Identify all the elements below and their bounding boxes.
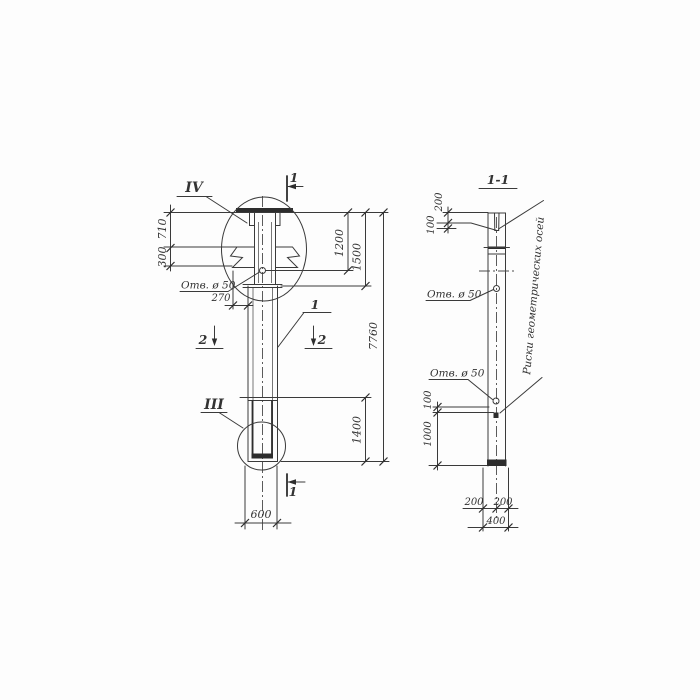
- section-view: 1-1: [423, 172, 547, 532]
- section-hole-callout-bottom: Отв. ø 50: [429, 368, 493, 400]
- dim-270: 270: [210, 293, 231, 304]
- section-title-group: 1-1: [479, 172, 517, 189]
- section-cut-2-right-label: 2: [317, 332, 327, 347]
- section-cut-2-left: 2: [196, 326, 223, 349]
- drawing-sheet: IV III 1 1 2: [0, 0, 700, 700]
- dim-200-top: 200: [434, 192, 445, 213]
- section-bottom-end: [487, 460, 507, 467]
- corbel-right: [276, 247, 300, 268]
- section-cut-1-top: 1: [287, 170, 303, 201]
- detail-mark-top-label: IV: [184, 180, 205, 196]
- section-cut-2-left-label: 2: [198, 332, 208, 347]
- position-label: 1: [311, 297, 320, 312]
- lower-joint: [240, 398, 285, 401]
- section-cut-2-right: 2: [305, 326, 332, 349]
- dim-1400: 1400: [351, 416, 364, 444]
- dim-100-bottom: 100: [423, 390, 434, 410]
- section-title: 1-1: [487, 172, 510, 187]
- cap-plate: [236, 208, 293, 213]
- axis-note: Риски геометрических осей: [521, 216, 547, 376]
- section-dims-width: 200 200 400: [463, 468, 518, 532]
- front-view: IV III 1 1 2: [156, 170, 389, 532]
- dim-600: 600: [251, 508, 272, 521]
- section-cut-1-bottom-label: 1: [289, 484, 298, 499]
- section-cut-1-top-label: 1: [290, 170, 299, 185]
- technical-drawing: IV III 1 1 2: [0, 0, 700, 700]
- corbel-left: [231, 247, 255, 268]
- front-hole-label: Отв. ø 50: [181, 280, 236, 292]
- dim-100-top: 100: [426, 215, 437, 235]
- detail-mark-top: IV: [177, 180, 247, 223]
- dim-7760: 7760: [367, 322, 380, 350]
- dim-1500: 1500: [351, 243, 364, 271]
- section-hole-bottom: [493, 398, 499, 404]
- dim-400: 400: [485, 516, 506, 527]
- detail-mark-bottom-label: III: [203, 397, 224, 413]
- section-hole-label-bottom: Отв. ø 50: [430, 368, 485, 380]
- dim-600-group: 600: [235, 466, 291, 529]
- dim-1200: 1200: [333, 229, 346, 257]
- axis-notch-bottom: [494, 413, 499, 419]
- section-hole-callout-top: Отв. ø 50: [426, 289, 494, 301]
- cap-neck: [250, 213, 281, 285]
- dim-710: 710: [156, 219, 169, 240]
- dim-200-right: 200: [492, 497, 513, 508]
- dim-1000: 1000: [423, 421, 434, 447]
- detail-circle-bottom: [238, 422, 286, 470]
- dim-300: 300: [156, 247, 169, 268]
- section-cut-1-bottom: 1: [287, 474, 305, 499]
- section-dims-lower: 100 1000: [423, 390, 494, 470]
- detail-mark-bottom: III: [201, 397, 243, 428]
- dim-200-left: 200: [463, 497, 484, 508]
- section-dims-top: 200 100: [426, 192, 497, 235]
